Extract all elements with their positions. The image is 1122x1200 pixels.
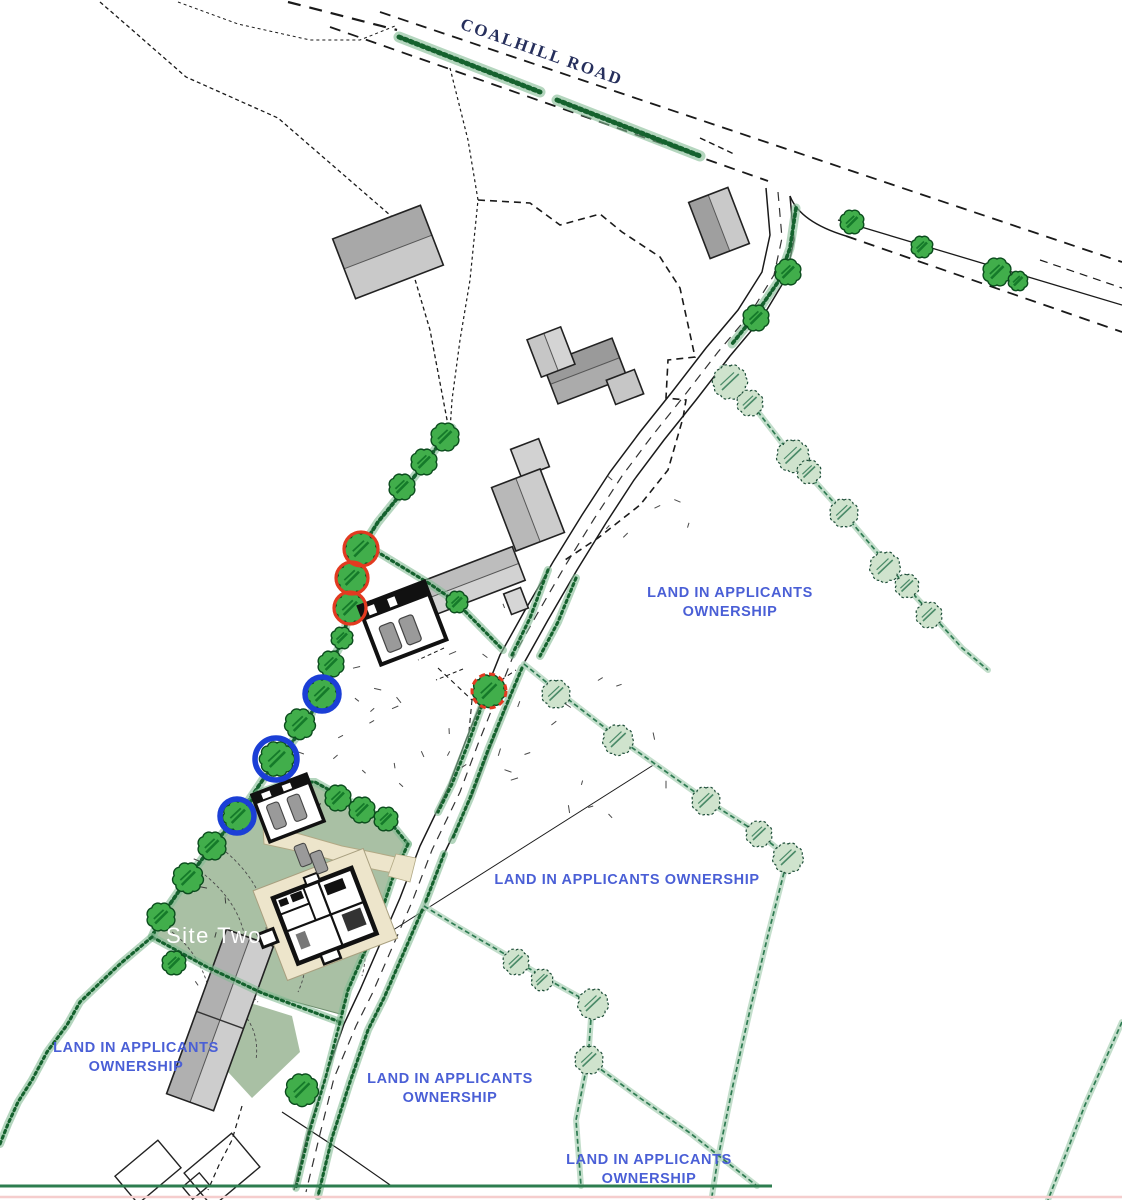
outline-building-2 [184,1133,260,1200]
site-plan-page: COALHILL ROADSite TwoLAND IN APPLICANTSO… [0,0,1122,1200]
grass-tick [483,654,488,658]
building-t-main [492,469,565,551]
label-ownership-middle: LAND IN APPLICANTS OWNERSHIP [494,872,759,888]
grass-tick [608,477,612,481]
grass-tick [609,814,613,818]
grass-tick [606,525,609,528]
building-north [333,205,444,298]
hedgerows [0,37,1122,1200]
road-treeline-solid [838,220,1122,305]
grass-tick [518,701,520,707]
label-ownership-bottom-right: LAND IN APPLICANTS [566,1152,732,1168]
hedge-right-down-under [712,857,788,1196]
label-ownership-bottom-left: LAND IN APPLICANTS [53,1040,219,1056]
grass-tick [195,981,198,985]
grass-tick [362,770,365,773]
grass-tick [511,778,518,780]
building-t-top-body [511,439,550,478]
building-t-top [511,439,550,478]
bottom-edge-lines [0,1186,1122,1197]
road-approach [288,2,397,30]
grass-tick [598,678,603,681]
grass-tick [225,897,226,903]
grass-tick [674,500,680,503]
grass-tick [355,698,359,701]
outline-building-1 [115,1140,181,1200]
road-lower-edge-right [846,236,1122,332]
grass-tick [525,753,531,755]
label-ownership-bottom-middle: LAND IN APPLICANTS [367,1071,533,1087]
grass-tick [653,733,655,740]
grass-tick [447,751,449,755]
label-site-two: Site Two [166,923,262,948]
grass-tick [581,781,582,785]
grass-tick [397,697,402,703]
grass-tick [374,688,381,690]
grass-tick [369,720,374,723]
road-upper-edge [380,12,1122,262]
grass-tick [655,505,661,508]
outline-building-1-outline [115,1140,181,1200]
label-ownership-right: LAND IN APPLICANTS [647,585,813,601]
label-ownership-bottom-right: OWNERSHIP [602,1171,697,1187]
grass-tick [338,735,343,738]
grass-tick [616,684,621,686]
grass-tick [399,783,403,786]
label-ownership-bottom-left: OWNERSHIP [89,1059,184,1075]
label-ownership-right: OWNERSHIP [683,604,778,620]
grass-tick [505,770,512,773]
grass-tick [551,721,556,725]
grass-tick [333,755,337,759]
grass-tick [394,763,395,768]
outline-building-2-outline [184,1133,260,1200]
grass-tick [370,708,374,711]
boundary-boundary-v [450,68,478,430]
grass-tick [568,805,569,813]
label-ownership-bottom-middle: OWNERSHIP [403,1090,498,1106]
grass-tick [421,751,424,757]
trees-pale [503,365,942,1074]
grass-tick [449,651,456,654]
grass-tick [498,749,500,756]
building-junction [689,187,750,258]
hedge-road-bar-2 [557,100,700,156]
grass-tick [392,706,398,709]
road-junction-stub [700,138,734,154]
boundary-boundary-a [100,2,448,425]
label-coalhill-road: COALHILL ROAD [458,14,626,89]
grass-tick [688,523,690,528]
grass-tick [623,533,627,537]
site-plan-svg: COALHILL ROADSite TwoLAND IN APPLICANTSO… [0,0,1122,1200]
grass-tick [353,667,360,669]
grass-tick [503,604,505,608]
